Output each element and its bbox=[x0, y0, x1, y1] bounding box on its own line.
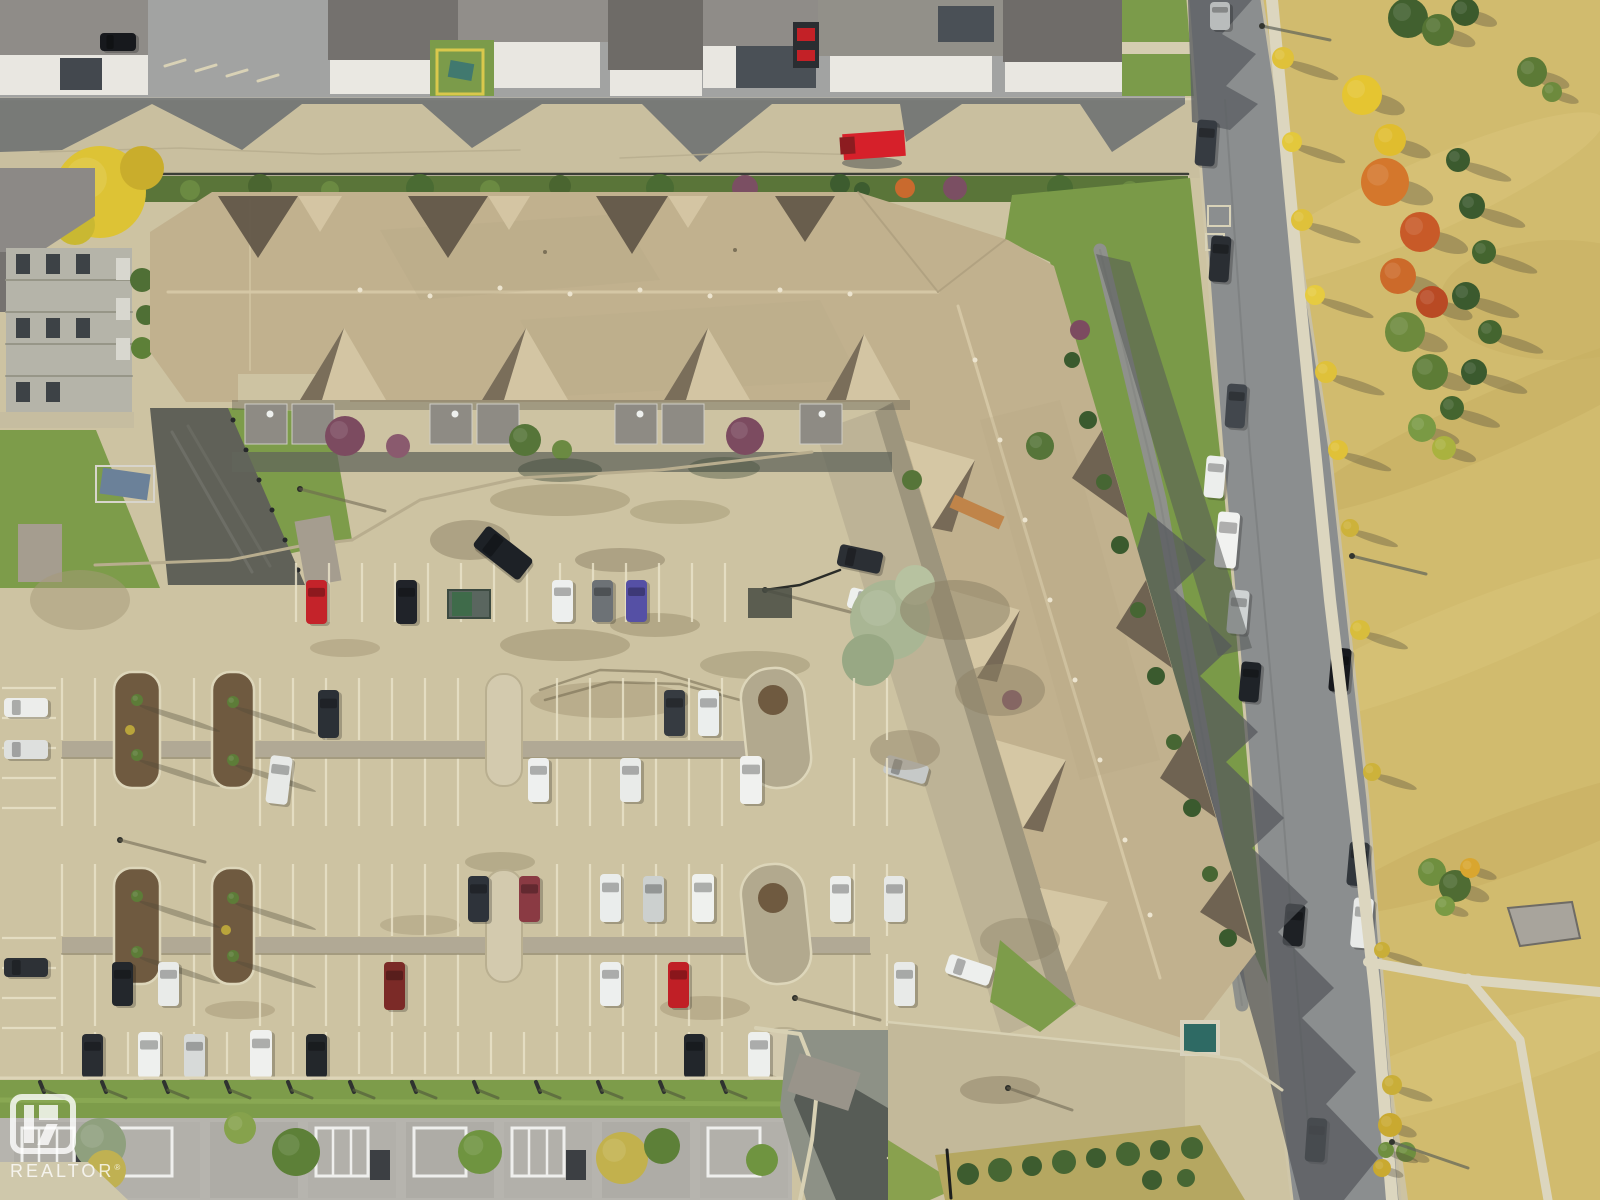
yellow-tree bbox=[120, 146, 164, 190]
realtor-wordmark: REALTOR® bbox=[10, 1161, 120, 1182]
purple-shrub bbox=[1070, 320, 1090, 340]
ac-unit bbox=[637, 411, 644, 418]
realtor-logo-box bbox=[39, 1105, 58, 1120]
stain bbox=[960, 1076, 1040, 1104]
roof-vent bbox=[1148, 913, 1153, 918]
shrub bbox=[131, 337, 153, 359]
grate-pad bbox=[748, 588, 792, 618]
roof-vent bbox=[848, 292, 853, 297]
roof-vent bbox=[778, 288, 783, 293]
parked-car bbox=[112, 962, 136, 1008]
conifer bbox=[1130, 602, 1146, 618]
ac-unit bbox=[267, 411, 274, 418]
purple-ornamental-tree bbox=[325, 416, 365, 456]
conifer bbox=[1064, 352, 1080, 368]
parked-car bbox=[552, 580, 576, 624]
yellow-tree bbox=[596, 1132, 648, 1184]
roof-vent bbox=[428, 294, 433, 299]
window bbox=[46, 254, 60, 274]
realtor-logo-leg bbox=[37, 1124, 57, 1145]
roof-vent bbox=[1123, 838, 1128, 843]
mud-stain bbox=[900, 580, 1010, 640]
porch-roof bbox=[615, 404, 657, 444]
fence-post bbox=[231, 418, 236, 423]
conifer bbox=[1142, 1170, 1162, 1190]
purple-shrub bbox=[386, 434, 410, 458]
roof-vent bbox=[1048, 598, 1053, 603]
window bbox=[16, 254, 30, 274]
house-garage bbox=[60, 58, 102, 90]
parked-car bbox=[626, 580, 650, 624]
dirt-stain bbox=[500, 629, 630, 661]
parked-car bbox=[1203, 455, 1230, 501]
house-dark-wall bbox=[938, 6, 994, 42]
tree bbox=[272, 1128, 320, 1176]
patio-furniture bbox=[566, 1150, 586, 1180]
parked-car bbox=[184, 1034, 208, 1080]
conifer bbox=[1183, 799, 1201, 817]
roof-vent bbox=[498, 286, 503, 291]
purple-shrub bbox=[943, 176, 967, 200]
house-roof bbox=[608, 0, 704, 70]
conifer bbox=[988, 1158, 1012, 1182]
conifer bbox=[1219, 929, 1237, 947]
parked-car bbox=[100, 33, 139, 53]
parked-truck bbox=[740, 756, 765, 806]
porch-roof bbox=[430, 404, 472, 444]
parked-car bbox=[138, 1032, 163, 1080]
planter-island bbox=[114, 672, 160, 788]
aggregate-walkway bbox=[522, 937, 870, 953]
parked-car bbox=[4, 698, 51, 719]
fence-post bbox=[244, 448, 249, 453]
gazebo-roof bbox=[1508, 902, 1580, 946]
realtor-logo-bar bbox=[24, 1105, 34, 1143]
house-wall bbox=[830, 56, 992, 92]
light-pole bbox=[1259, 23, 1265, 29]
tree bbox=[458, 1130, 502, 1174]
realtor-watermark: REALTOR® bbox=[10, 1094, 120, 1182]
green-tree bbox=[1026, 432, 1054, 460]
dirt-stain bbox=[310, 639, 380, 657]
tree bbox=[746, 1144, 778, 1176]
realtor-logo-icon bbox=[10, 1094, 76, 1154]
roof-vent bbox=[543, 250, 547, 254]
dirt-stain bbox=[30, 570, 130, 630]
mud-stain bbox=[870, 730, 940, 770]
parked-car bbox=[884, 876, 908, 924]
parked-car bbox=[830, 876, 854, 924]
parked-car bbox=[664, 690, 688, 738]
parked-car bbox=[698, 690, 722, 738]
parked-car bbox=[1194, 119, 1220, 168]
window bbox=[16, 318, 30, 338]
grass-tuft bbox=[221, 925, 231, 935]
dirt-stain bbox=[610, 613, 700, 637]
dirt-stain bbox=[630, 500, 730, 524]
conifer bbox=[957, 1163, 979, 1185]
parked-car bbox=[396, 580, 420, 626]
ac-unit bbox=[819, 411, 826, 418]
parked-car bbox=[620, 758, 644, 804]
shrub bbox=[552, 440, 572, 460]
parked-car bbox=[306, 1034, 330, 1080]
parked-car bbox=[684, 1034, 708, 1080]
parked-van bbox=[692, 874, 717, 924]
purple-ornamental-tree bbox=[726, 417, 764, 455]
porch-roof bbox=[245, 404, 287, 444]
house-roof bbox=[1003, 0, 1125, 62]
entry-walk bbox=[0, 412, 134, 428]
roof-vent bbox=[638, 288, 643, 293]
window bbox=[46, 318, 60, 338]
window bbox=[76, 254, 90, 274]
conifer bbox=[1202, 866, 1218, 882]
truck-red-cargo bbox=[797, 28, 815, 41]
mulch-bed bbox=[758, 685, 788, 715]
balcony bbox=[116, 338, 130, 360]
townhouse-unit bbox=[112, 1122, 200, 1198]
balcony bbox=[116, 298, 130, 320]
parked-car bbox=[82, 1034, 106, 1080]
fence-post bbox=[257, 478, 262, 483]
conifer bbox=[1147, 667, 1165, 685]
top-houses bbox=[0, 0, 1242, 100]
conifer bbox=[1116, 1142, 1140, 1166]
roof-vent bbox=[1073, 678, 1078, 683]
house-wall bbox=[1005, 62, 1123, 92]
light-pole bbox=[1349, 553, 1355, 559]
truck-red-cargo bbox=[797, 50, 815, 61]
conifer bbox=[1177, 1169, 1195, 1187]
house-wall bbox=[703, 46, 736, 88]
parked-car bbox=[384, 962, 408, 1012]
roof-vent bbox=[733, 248, 737, 252]
concrete-island bbox=[486, 674, 522, 786]
parked-car bbox=[592, 580, 616, 624]
dirt-stain bbox=[465, 852, 535, 872]
scene-svg bbox=[0, 0, 1600, 1200]
realtor-brand-text: REALTOR bbox=[10, 1161, 114, 1181]
balcony bbox=[116, 258, 130, 280]
mud-stain bbox=[980, 918, 1060, 962]
roof-vent bbox=[568, 292, 573, 297]
tree bbox=[224, 1112, 256, 1144]
conifer bbox=[1150, 1140, 1170, 1160]
top-street bbox=[0, 98, 1262, 178]
window bbox=[76, 318, 90, 338]
house-roof bbox=[458, 0, 608, 42]
roof-vent bbox=[1023, 518, 1028, 523]
parked-car bbox=[668, 962, 692, 1010]
green-tree bbox=[509, 424, 541, 456]
fence-post bbox=[270, 508, 275, 513]
red-car-nose bbox=[839, 136, 855, 154]
teardrop-island bbox=[738, 861, 814, 987]
parked-van bbox=[250, 1030, 275, 1080]
parked-car bbox=[519, 876, 543, 924]
parked-car bbox=[528, 758, 552, 804]
parked-car bbox=[318, 690, 342, 740]
porch-roof bbox=[800, 404, 842, 444]
mulch-bed bbox=[758, 883, 788, 913]
conifer bbox=[1022, 1156, 1042, 1176]
fence-post bbox=[283, 538, 288, 543]
parked-car bbox=[600, 962, 624, 1008]
orange-shrub bbox=[895, 178, 915, 198]
conifer bbox=[1166, 734, 1182, 750]
registered-symbol: ® bbox=[114, 1163, 120, 1172]
conifer bbox=[1111, 536, 1129, 554]
parked-car bbox=[4, 740, 51, 761]
parked-car bbox=[1224, 383, 1250, 430]
parked-car bbox=[643, 876, 667, 924]
tree bbox=[644, 1128, 680, 1164]
patio-furniture bbox=[370, 1150, 390, 1180]
window bbox=[46, 382, 60, 402]
house-wall bbox=[610, 70, 702, 96]
roof-vent bbox=[358, 288, 363, 293]
skylight-pool bbox=[1182, 1022, 1218, 1054]
shrub bbox=[902, 470, 922, 490]
shrub bbox=[180, 180, 200, 200]
grass-tuft bbox=[125, 725, 135, 735]
parked-car bbox=[158, 962, 182, 1008]
refuse-enclosure-lid bbox=[452, 592, 472, 616]
ac-unit bbox=[452, 411, 459, 418]
roof-vent bbox=[973, 358, 978, 363]
dirt-stain bbox=[205, 1001, 275, 1019]
dirt-stain bbox=[490, 484, 630, 516]
light-pole bbox=[1389, 1139, 1395, 1145]
conifer bbox=[1086, 1148, 1106, 1168]
parked-car bbox=[894, 962, 918, 1008]
rock-bed bbox=[18, 524, 62, 582]
parked-car bbox=[1210, 2, 1233, 32]
roof-vent bbox=[998, 438, 1003, 443]
parked-car bbox=[4, 958, 51, 979]
parked-van bbox=[748, 1032, 773, 1080]
conifer bbox=[1079, 411, 1097, 429]
parked-car bbox=[1238, 661, 1265, 705]
mud-stain bbox=[955, 664, 1045, 716]
conifer bbox=[1096, 474, 1112, 490]
parked-truck bbox=[600, 874, 624, 924]
aerial-photo: REALTOR® bbox=[0, 0, 1600, 1200]
roof-vent bbox=[708, 294, 713, 299]
parked-car bbox=[306, 580, 330, 626]
dirt-stain bbox=[575, 548, 665, 572]
conifer bbox=[1052, 1150, 1076, 1174]
conifer bbox=[830, 174, 850, 194]
parked-car bbox=[468, 876, 492, 924]
porch-roof bbox=[662, 404, 704, 444]
conifer bbox=[1181, 1137, 1203, 1159]
parked-car bbox=[1208, 235, 1234, 284]
window bbox=[16, 382, 30, 402]
roof-vent bbox=[1098, 758, 1103, 763]
